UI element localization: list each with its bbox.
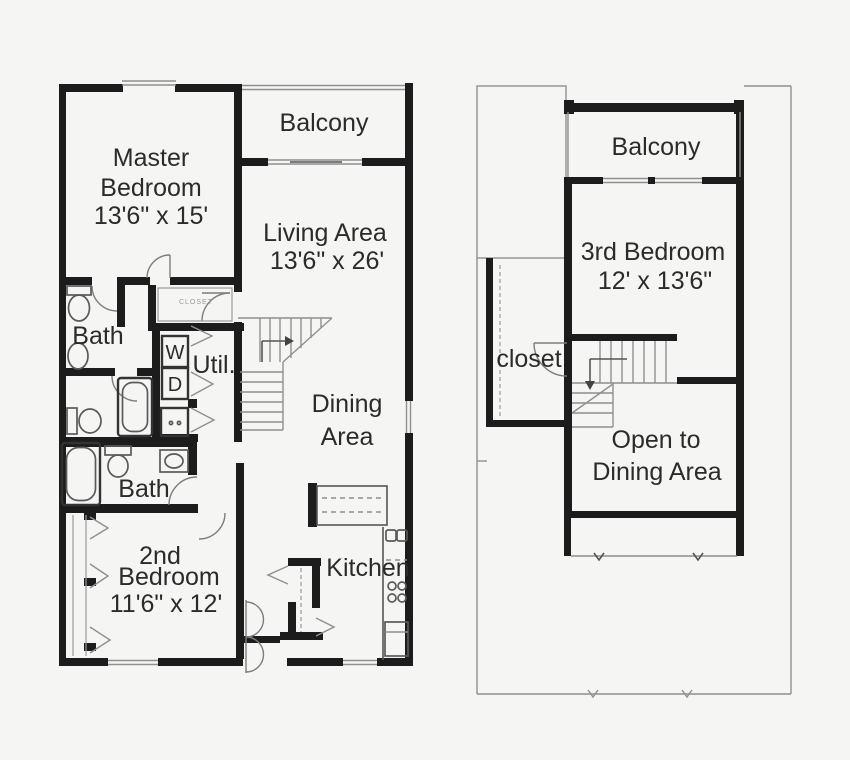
bathtub-icon	[62, 443, 100, 505]
washer-label: W	[166, 342, 185, 364]
kitchen-label: Kitchen	[326, 554, 409, 582]
open-to-dining-label: Open to	[612, 426, 701, 454]
bifold-door-icon	[191, 326, 214, 432]
closet-label: closet	[496, 345, 561, 373]
toilet-icon	[67, 408, 101, 434]
utility-label: Util.	[192, 351, 235, 379]
deck-rail-icon	[571, 553, 737, 560]
bath-label: Bath	[118, 475, 169, 503]
floor-plan-page: Balcony Master Bedroom 13'6" x 15' Livin…	[0, 0, 850, 760]
vanity-sink-icon	[160, 450, 188, 472]
first-floor-plan: Balcony Master Bedroom 13'6" x 15' Livin…	[59, 81, 413, 673]
dining-area-label: Area	[321, 423, 374, 451]
third-bedroom-label: 3rd Bedroom	[581, 238, 726, 266]
water-heater-icon	[161, 408, 188, 436]
floor-plan-image: Balcony Master Bedroom 13'6" x 15' Livin…	[0, 0, 850, 760]
dryer-label: D	[168, 374, 182, 396]
bath-label: Bath	[72, 322, 123, 350]
second-bedroom-dimensions: 11'6" x 12'	[110, 590, 222, 618]
refrigerator-icon	[385, 622, 408, 656]
balcony-label: Balcony	[280, 109, 369, 137]
stove-icon	[388, 582, 406, 602]
stairs-icon	[572, 341, 677, 427]
bathtub-icon	[118, 378, 152, 436]
open-to-dining-label: Dining Area	[592, 458, 721, 486]
master-bedroom-label: Bedroom	[100, 174, 201, 202]
living-area-label: Living Area	[263, 219, 387, 247]
balcony-railing-icon	[242, 86, 405, 90]
master-bedroom-dimensions: 13'6" x 15'	[94, 202, 208, 230]
balcony-label: Balcony	[612, 133, 701, 161]
dining-area-label: Dining	[312, 390, 383, 418]
toilet-icon	[67, 286, 91, 321]
pantry-closet-icon	[268, 566, 334, 636]
sliding-door-icon	[268, 160, 362, 164]
third-bedroom-dimensions: 12' x 13'6"	[598, 267, 712, 295]
master-bedroom-label: Master	[113, 144, 189, 172]
second-floor-walls	[486, 100, 744, 556]
second-bedroom-label: Bedroom	[118, 563, 219, 591]
toilet-icon	[105, 446, 131, 477]
second-floor-plan: Balcony 3rd Bedroom 12' x 13'6" closet O…	[477, 86, 791, 697]
closet-label-small: CLOSET	[179, 299, 213, 306]
living-area-dimensions: 13'6" x 26'	[270, 247, 384, 275]
